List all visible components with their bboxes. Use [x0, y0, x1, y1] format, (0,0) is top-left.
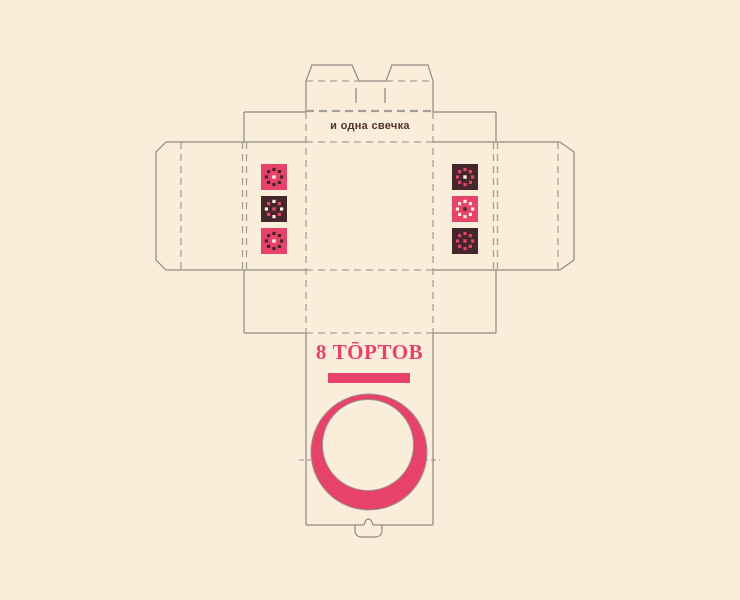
pattern-tiles-right [452, 164, 478, 254]
pattern-tile-pink [261, 164, 287, 190]
pattern-tile-brown [261, 196, 287, 222]
pattern-tile-brown [452, 164, 478, 190]
pattern-tiles-left [261, 164, 287, 254]
lid-slogan-text: и одна свечка [244, 120, 496, 132]
left-dust-flap-outline [156, 142, 166, 270]
brand-logo-text: 8 ТŌРТОВ [306, 340, 433, 365]
pattern-tile-pink [452, 196, 478, 222]
window-cutout-circle [323, 400, 414, 491]
top-tuck-tab-outline [306, 65, 433, 112]
bottom-lock-tab [355, 525, 382, 537]
dieline-linework [0, 0, 740, 600]
box-dieline-canvas: и одна свечка 8 ТŌРТОВ [0, 0, 740, 600]
pattern-tile-pink [261, 228, 287, 254]
bottom-tab-notch [364, 519, 373, 525]
right-dust-flap-outline [560, 142, 574, 270]
brand-underline-bar [328, 373, 410, 383]
pattern-tile-brown [452, 228, 478, 254]
